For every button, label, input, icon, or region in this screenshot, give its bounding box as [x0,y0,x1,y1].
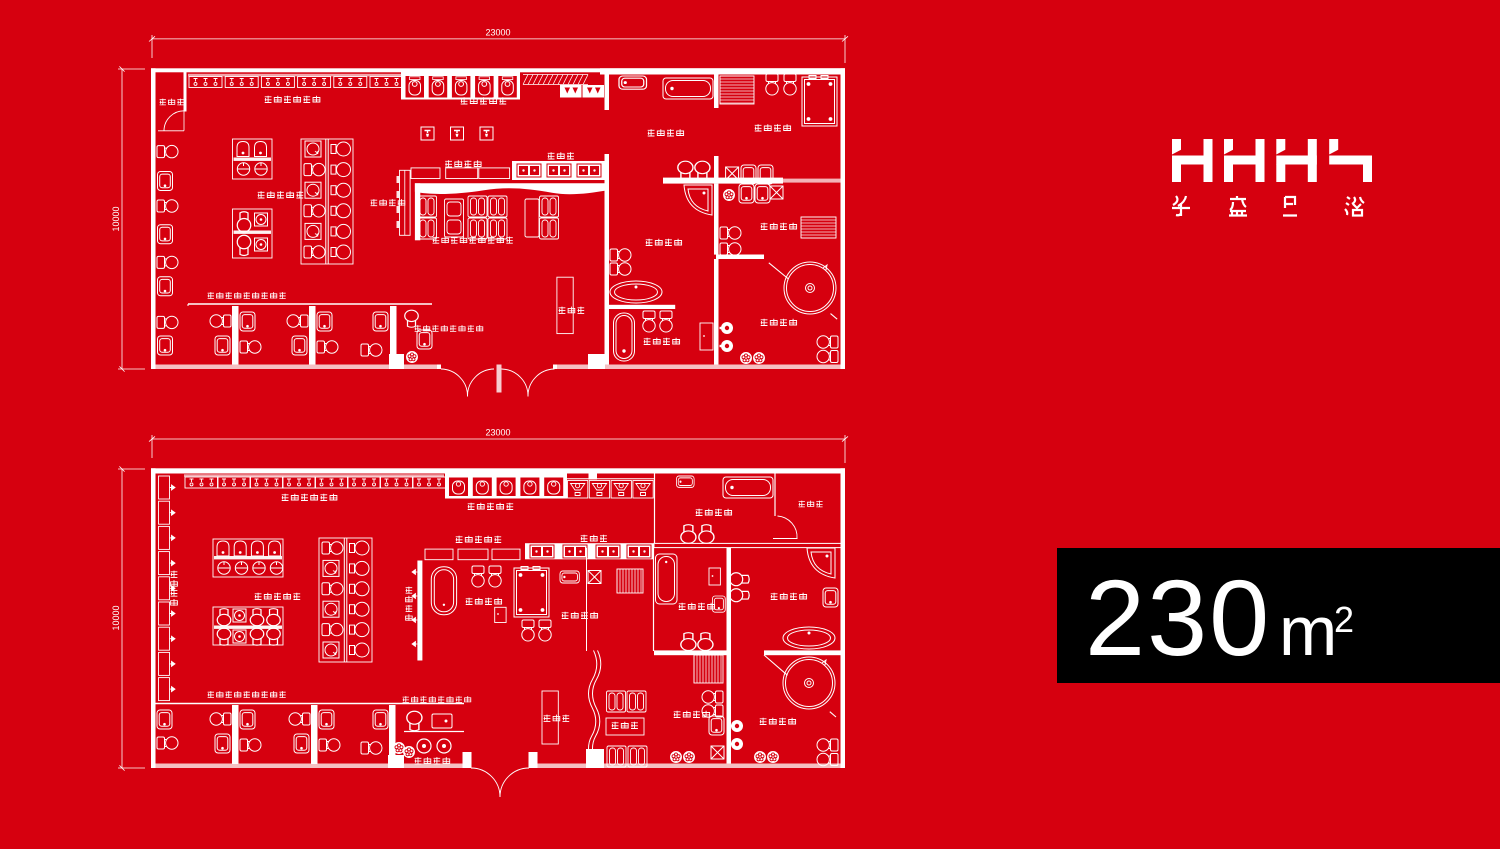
svg-text:m: m [1279,592,1337,670]
svg-text:10000: 10000 [111,605,121,630]
svg-text:230: 230 [1085,557,1271,678]
svg-text:23000: 23000 [485,428,510,438]
svg-text:23000: 23000 [485,28,510,38]
svg-text:10000: 10000 [111,206,121,231]
svg-text:2: 2 [1334,599,1354,640]
